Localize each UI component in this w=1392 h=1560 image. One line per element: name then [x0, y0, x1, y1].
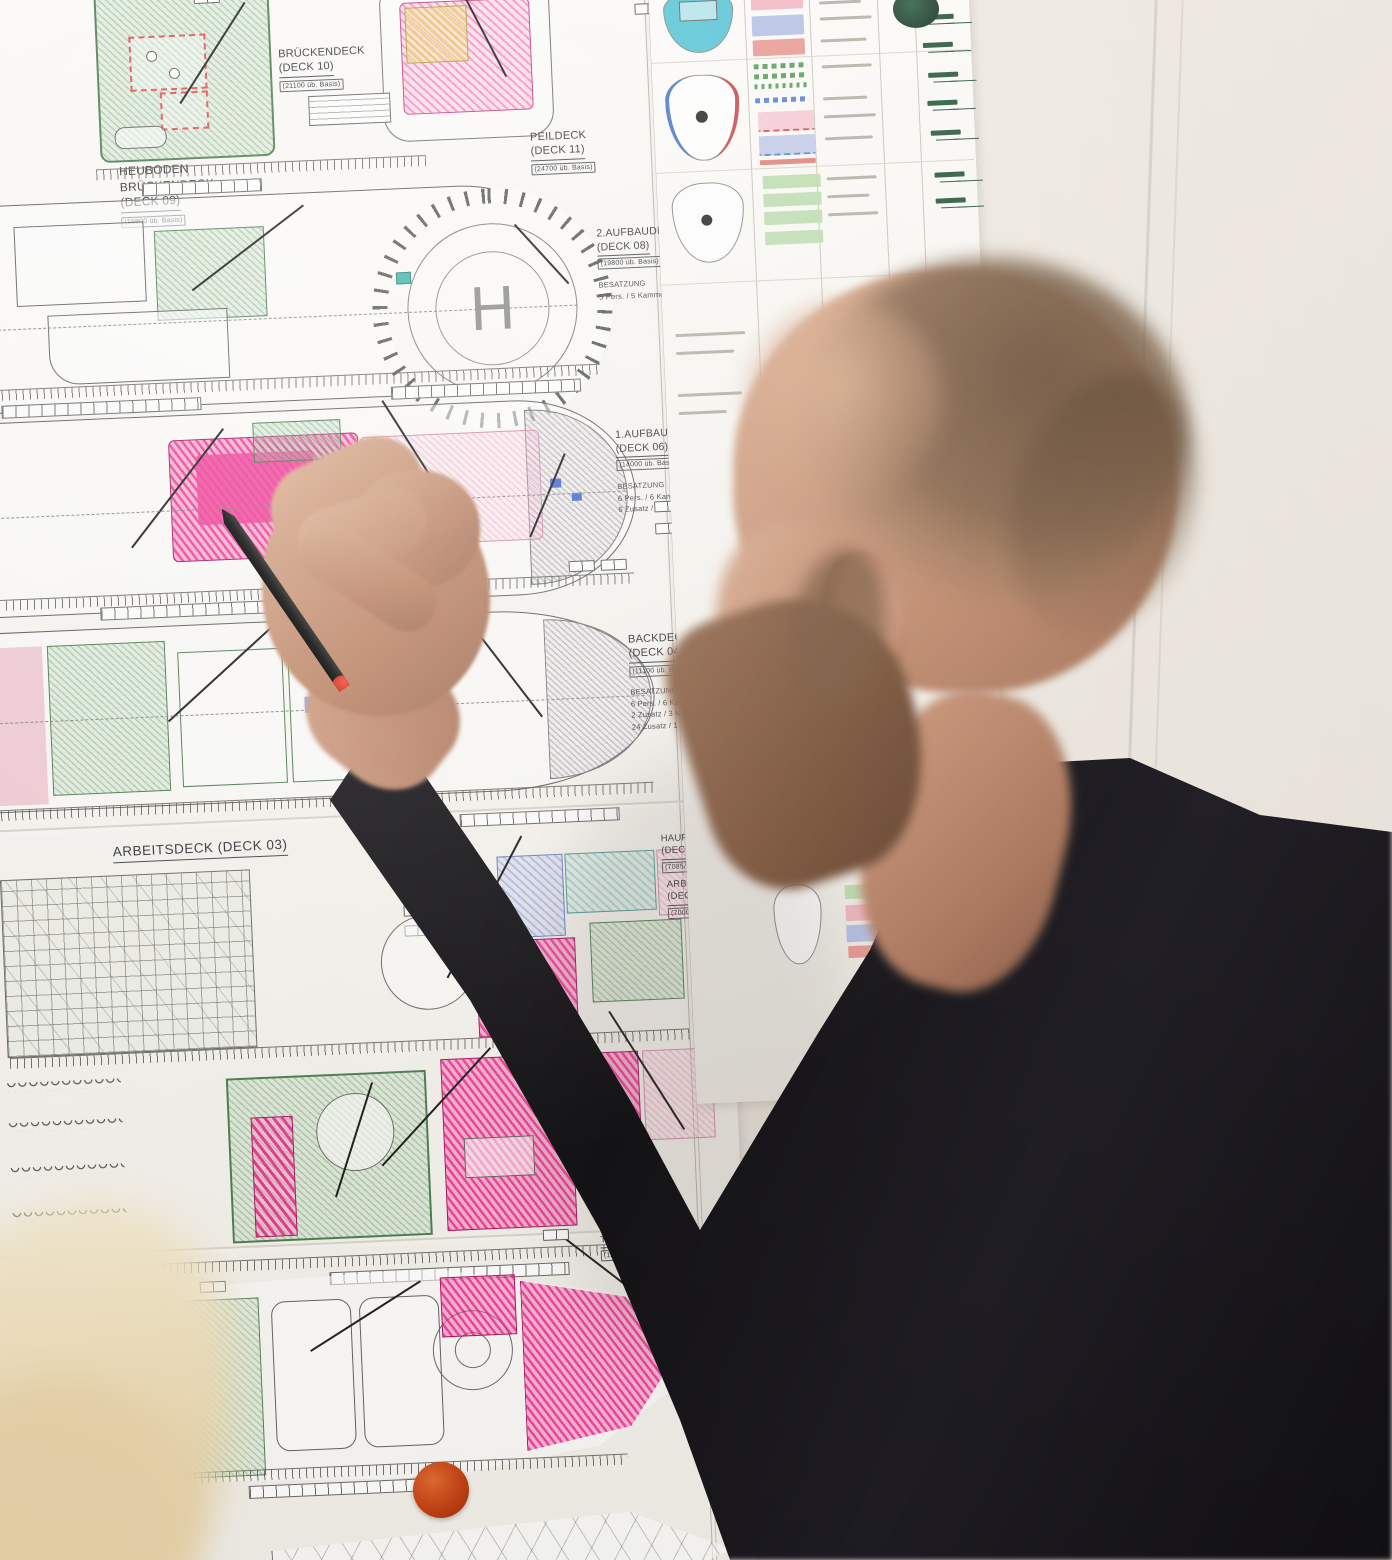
legend-stripe-red	[760, 158, 816, 165]
plan-room-red-dashed	[128, 34, 207, 92]
wavy-line	[10, 1163, 125, 1177]
plan-grid-area	[0, 869, 257, 1058]
person-bald-crown-highlight	[745, 300, 945, 505]
legend-bar-green	[763, 192, 822, 208]
teal-mark	[396, 272, 412, 285]
legend-text-line	[678, 391, 742, 397]
furniture-symbol	[923, 42, 953, 48]
legend-dash-green	[754, 72, 808, 79]
plan-room	[271, 1298, 357, 1451]
legend-swatch-pink	[750, 0, 803, 11]
photo-scene: HEUBODEN BRÜCKENDECK (DECK 09) (19800 üb…	[0, 0, 1392, 1560]
plan-room	[177, 648, 288, 787]
legend-swatch-red	[753, 38, 806, 56]
legend-text-line	[828, 211, 878, 216]
legend-swatch-blue	[751, 14, 804, 36]
legend-text-line	[827, 194, 869, 199]
deck-label-brueckendeck: BRÜCKENDECK (DECK 10) (21100 üb. Basis)	[278, 44, 366, 93]
furniture-symbol	[936, 197, 966, 203]
deck-label-arbeitsdeck-main: ARBEITSDECK (DECK 03)	[112, 836, 287, 863]
legend-bar-green	[762, 174, 821, 190]
legend-text-line	[820, 15, 872, 20]
deck-label-peildeck: PEILDECK (DECK 11) (24700 üb. Basis)	[530, 128, 596, 176]
legend-text-line	[827, 175, 877, 180]
legend-text-line	[825, 135, 873, 140]
ship-bow-room	[679, 0, 718, 22]
plan-room	[47, 308, 230, 386]
legend-text-line	[679, 410, 727, 415]
plan-room	[464, 1135, 536, 1178]
legend-text-line	[675, 331, 745, 337]
plan-room	[359, 1295, 445, 1448]
frame-tag	[569, 560, 595, 572]
legend-dash-blue	[755, 96, 809, 103]
furniture-symbol	[927, 100, 957, 106]
legend-text-line	[824, 113, 876, 118]
legend-text-line	[822, 63, 872, 68]
legend-swatch-blue-2	[759, 134, 816, 156]
plan-rosy-zone	[0, 646, 49, 806]
legend-bar-green	[765, 230, 824, 246]
frame-tag	[601, 559, 627, 571]
legend-swatch-pink-2	[758, 110, 815, 132]
frame-tag	[543, 1229, 569, 1241]
plan-room	[13, 221, 146, 307]
plan-room	[114, 125, 167, 149]
plan-magenta-strip	[251, 1116, 298, 1238]
plan-tankdeck-magenta-2	[440, 1274, 518, 1337]
plan-peildeck-yellow	[404, 5, 468, 64]
legend-text-line	[821, 38, 867, 43]
furniture-symbol	[931, 130, 961, 136]
furniture-symbol	[928, 72, 958, 78]
wavy-line	[8, 1118, 123, 1132]
legend-dot-green	[754, 82, 808, 89]
magnet-red	[413, 1462, 469, 1518]
legend-text-line	[676, 350, 734, 356]
furniture-symbol	[934, 171, 964, 177]
legend-text-line	[823, 96, 867, 101]
legend-dash-green	[754, 62, 808, 69]
hull-profile-drawing	[270, 1495, 735, 1560]
legend-bar-green	[764, 210, 823, 226]
legend-text-line	[819, 0, 861, 5]
frame-tag-strip	[249, 1478, 429, 1499]
note-box	[308, 93, 391, 127]
wavy-line	[6, 1078, 121, 1092]
